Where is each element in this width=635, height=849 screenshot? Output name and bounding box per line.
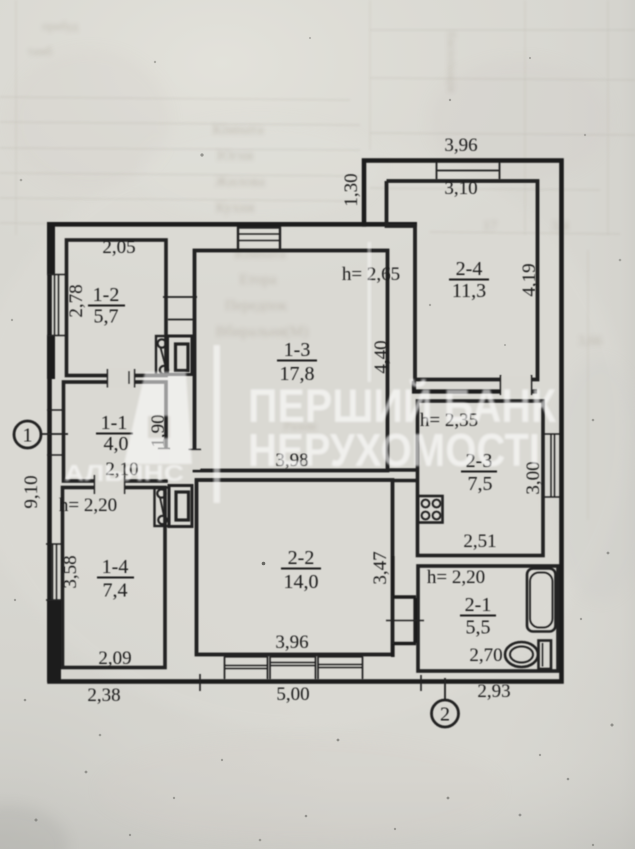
- svg-text:Передпок: Передпок: [225, 298, 288, 314]
- svg-text:3,96: 3,96: [444, 135, 477, 156]
- svg-text:тамб: тамб: [28, 44, 52, 58]
- svg-text:5,5: 5,5: [466, 617, 491, 639]
- svg-text:3,10: 3,10: [444, 178, 477, 199]
- svg-text:АЛЬЯНС: АЛЬЯНС: [64, 460, 184, 486]
- svg-text:1-3: 1-3: [284, 339, 311, 361]
- svg-text:3,47: 3,47: [370, 551, 391, 584]
- svg-text:2,51: 2,51: [463, 531, 496, 552]
- svg-text:3,58: 3,58: [60, 555, 81, 588]
- svg-text:прибуд: прибуд: [42, 19, 78, 33]
- svg-text:14,0: 14,0: [284, 571, 319, 593]
- svg-text:h= 2,20: h= 2,20: [427, 567, 485, 588]
- svg-text:1-1: 1-1: [101, 412, 128, 434]
- svg-text:2,09: 2,09: [98, 648, 131, 669]
- svg-text:1: 1: [23, 425, 33, 447]
- svg-text:Експлікація: Експлікація: [445, 32, 459, 93]
- svg-text:2-4: 2-4: [456, 258, 483, 280]
- svg-text:2,05: 2,05: [102, 237, 135, 258]
- svg-text:2: 2: [440, 704, 450, 726]
- svg-text:2,93: 2,93: [477, 681, 510, 702]
- svg-text:9,10: 9,10: [21, 475, 42, 508]
- svg-text:h= 2,20: h= 2,20: [59, 495, 117, 516]
- svg-text:3,96: 3,96: [275, 632, 308, 653]
- svg-text:2,38: 2,38: [87, 685, 120, 706]
- svg-text:1,30: 1,30: [341, 173, 362, 206]
- svg-text:Югня: Югня: [217, 148, 254, 164]
- svg-text:Жилова: Жилова: [215, 174, 265, 190]
- svg-text:17: 17: [483, 219, 497, 234]
- svg-text:Вбиральня(М): Вбиральня(М): [216, 324, 309, 340]
- svg-text:7,5: 7,5: [468, 473, 493, 495]
- svg-text:7,4: 7,4: [103, 580, 128, 602]
- svg-text:5,7: 5,7: [94, 306, 119, 328]
- svg-text:НЕРУХОМОСТІ: НЕРУХОМОСТІ: [248, 424, 540, 476]
- svg-text:4,19: 4,19: [519, 263, 540, 296]
- svg-text:5,00: 5,00: [276, 684, 309, 705]
- svg-text:Кухня: Кухня: [216, 200, 255, 216]
- svg-text:2,78: 2,78: [66, 284, 87, 317]
- svg-text:Кімната: Кімната: [234, 246, 286, 262]
- svg-text:4,0: 4,0: [104, 433, 129, 455]
- svg-text:2-1: 2-1: [465, 594, 492, 616]
- svg-text:3,66: 3,66: [578, 334, 603, 349]
- svg-text:1-2: 1-2: [93, 284, 120, 306]
- svg-text:Етора: Етора: [239, 272, 277, 288]
- svg-text:Кімната: Кімната: [212, 122, 264, 138]
- svg-text:1-4: 1-4: [102, 556, 129, 578]
- svg-text:2,70: 2,70: [469, 645, 502, 666]
- svg-text:11,3: 11,3: [452, 280, 486, 302]
- svg-text:2-2: 2-2: [288, 547, 315, 569]
- svg-text:4,40: 4,40: [371, 340, 392, 373]
